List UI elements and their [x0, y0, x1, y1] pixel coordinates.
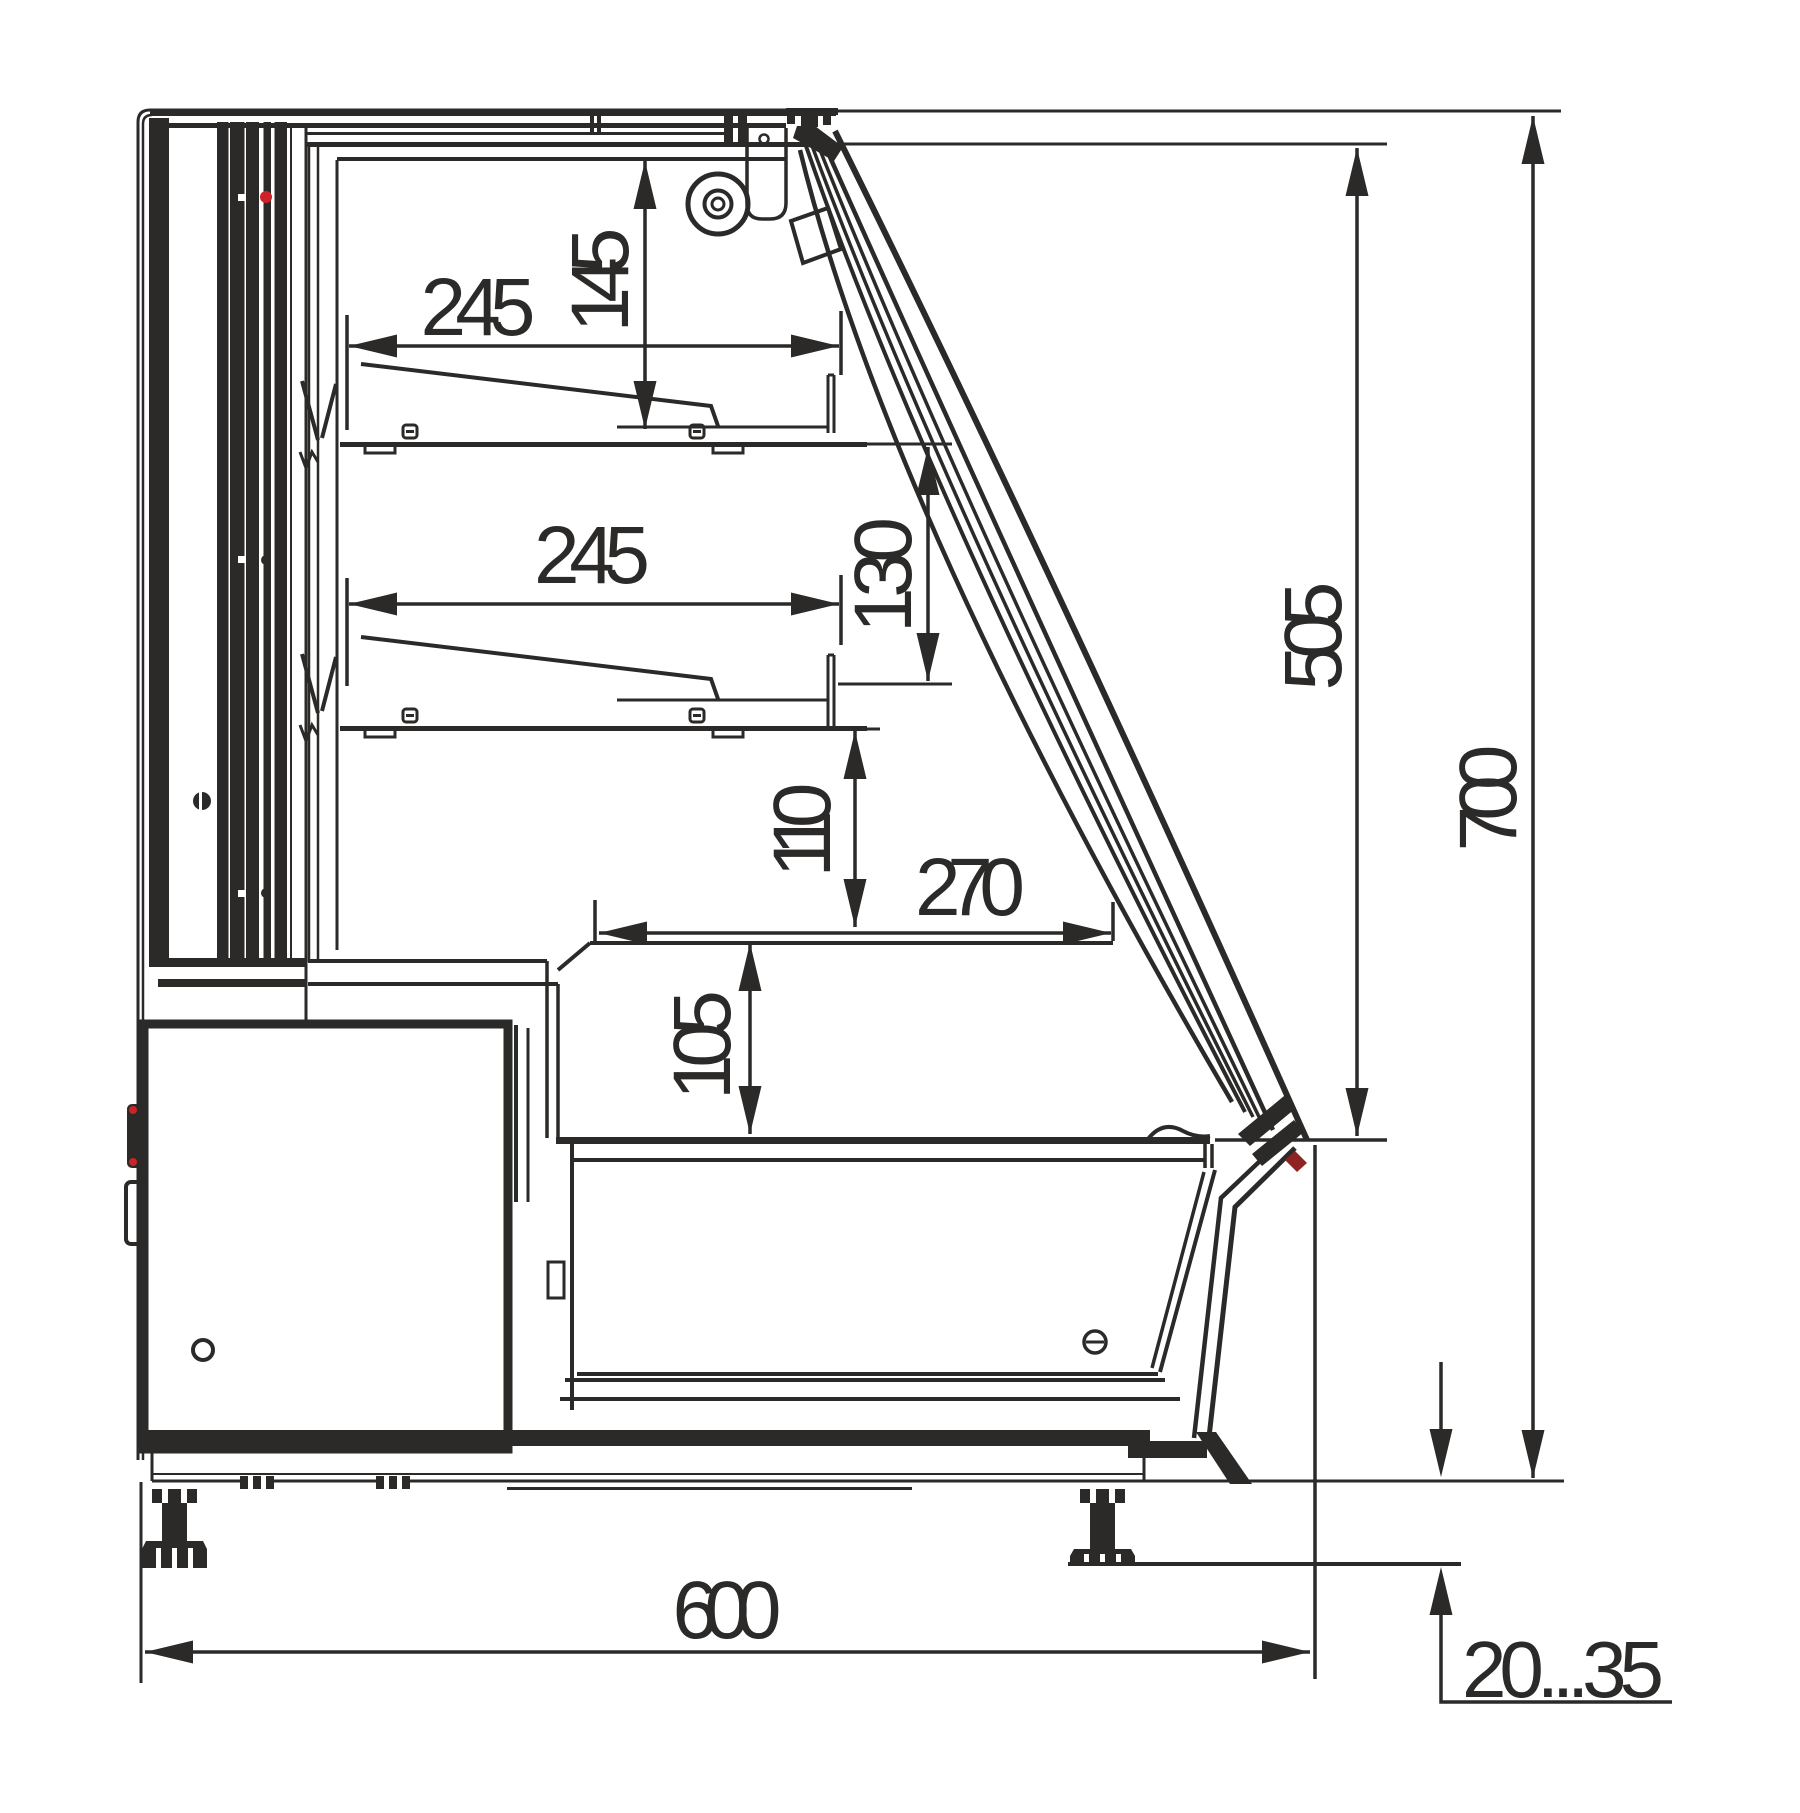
svg-text:600: 600: [673, 1565, 782, 1656]
svg-text:245: 245: [534, 510, 650, 601]
svg-text:110: 110: [757, 783, 848, 878]
svg-text:245: 245: [421, 262, 536, 353]
svg-text:105: 105: [657, 990, 748, 1100]
svg-text:20...35: 20...35: [1462, 1625, 1664, 1714]
svg-text:145: 145: [555, 228, 646, 333]
svg-text:270: 270: [915, 842, 1025, 933]
svg-text:700: 700: [1443, 745, 1534, 852]
svg-text:130: 130: [838, 517, 929, 633]
svg-text:505: 505: [1268, 582, 1359, 691]
